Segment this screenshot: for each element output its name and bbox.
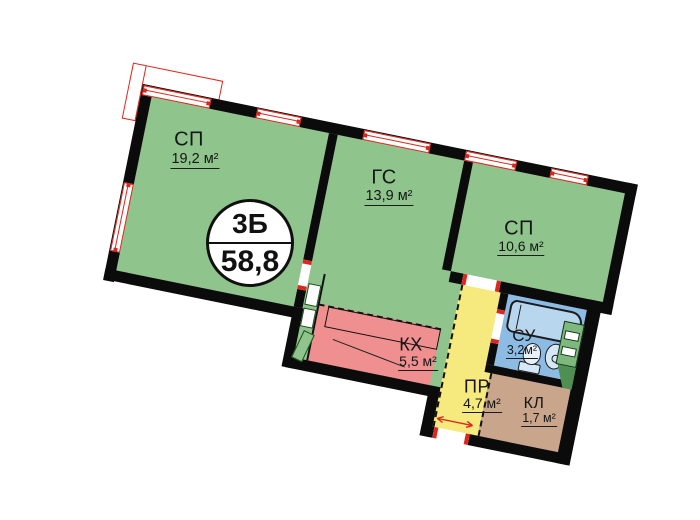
room-area-kitchen: 5,5 м² [398, 353, 438, 371]
apartment-type: 3Б [209, 206, 291, 242]
room-label-living: ГС [371, 167, 396, 190]
room-area-bathroom: 3,2м² [506, 343, 538, 359]
room-label-bedroom-large: СП [174, 129, 204, 152]
room-area-bedroom-large: 19,2 м² [170, 151, 219, 169]
room-area-hall: 4,7 м² [462, 395, 502, 413]
apartment-badge: 3Б 58,8 [206, 199, 294, 287]
room-area-bedroom-small: 10,6 м² [497, 238, 544, 256]
room-area-closet: 1,7 м² [521, 411, 557, 427]
apartment-total-area: 58,8 [209, 243, 291, 281]
floor-plan-canvas: СП 19,2 м² ГС 13,9 м² СП 10,6 м² КХ 5,5 … [0, 0, 700, 520]
room-area-living: 13,9 м² [364, 188, 413, 206]
